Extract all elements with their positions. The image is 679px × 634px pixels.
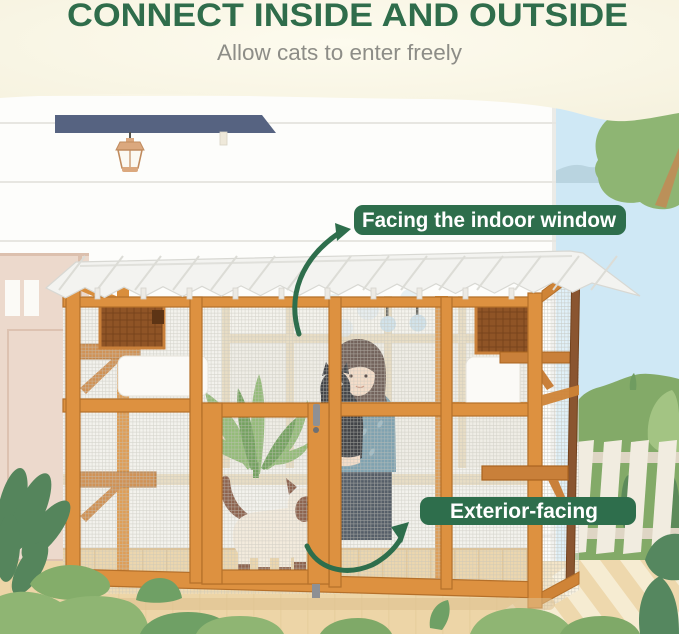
svg-text:Exterior-facing: Exterior-facing	[450, 500, 598, 523]
svg-text:Allow cats to enter freely: Allow cats to enter freely	[217, 40, 462, 65]
svg-text:CONNECT INSIDE AND OUTSIDE: CONNECT INSIDE AND OUTSIDE	[67, 0, 628, 33]
svg-text:Facing the indoor window: Facing the indoor window	[362, 209, 617, 232]
